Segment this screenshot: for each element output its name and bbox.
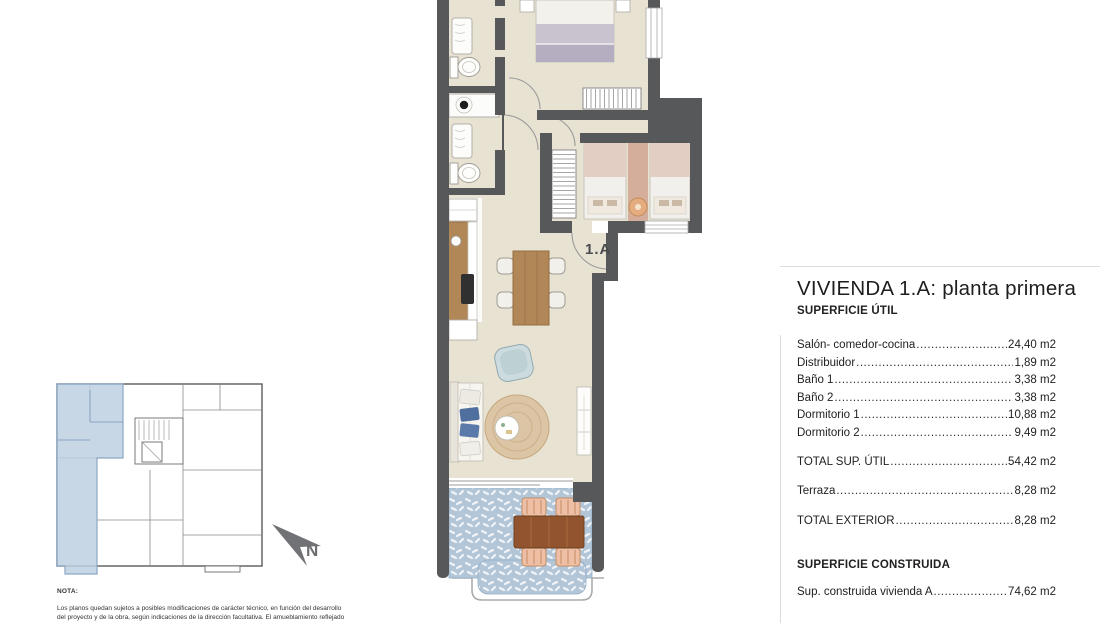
surface-row-construida: Sup. construida vivienda A .............…: [797, 584, 1056, 602]
sofa: [450, 382, 483, 462]
surface-row-value: 1,89 m2: [1014, 355, 1056, 373]
nightstand: [520, 0, 534, 12]
surface-row-label: Salón- comedor-cocina: [797, 337, 915, 355]
dotted-leader: ........................................…: [934, 584, 1008, 602]
surface-row-total-exterior: TOTAL EXTERIOR .........................…: [797, 513, 1056, 531]
surface-row-value: 8,28 m2: [1014, 483, 1056, 501]
surface-row: Dormitorio 1............................…: [797, 407, 1056, 425]
surface-row-value: 3,38 m2: [1014, 390, 1056, 408]
surface-row-label: Sup. construida vivienda A: [797, 584, 933, 602]
bedroom-2: [552, 143, 690, 221]
surface-row-label: Dormitorio 2: [797, 425, 860, 443]
surface-row-value: 9,49 m2: [1014, 425, 1056, 443]
surface-rows-util: Salón- comedor-cocina...................…: [797, 337, 1056, 443]
toilet-2: [450, 163, 480, 184]
window-bedroom2: [645, 221, 688, 233]
washbasin-counter: [449, 94, 499, 117]
single-bed-2: [650, 143, 690, 219]
surface-row-label: Terraza: [797, 483, 835, 501]
dining-table: [513, 251, 549, 325]
dotted-leader: ........................................…: [916, 337, 1007, 355]
panel-title: VIVIENDA 1.A: planta primera: [797, 277, 1056, 301]
note-line-1: Los planos quedan sujetos a posibles mod…: [57, 604, 387, 613]
dotted-leader: ........................................…: [836, 483, 1013, 501]
surface-row-label: Baño 1: [797, 372, 833, 390]
note-heading: NOTA:: [57, 588, 387, 595]
stair-core: [135, 418, 183, 464]
section-superficie-util: SUPERFICIE ÚTIL: [797, 305, 1056, 317]
surface-row-label: TOTAL SUP. ÚTIL: [797, 454, 889, 472]
surface-row-value: 8,28 m2: [1014, 513, 1056, 531]
north-label: N: [306, 541, 318, 561]
side-table: [495, 416, 519, 440]
surface-row-terraza: Terraza ................................…: [797, 483, 1056, 501]
surface-row-value: 3,38 m2: [1014, 372, 1056, 390]
terrace-table: [514, 516, 584, 548]
window-bedroom1: [646, 8, 662, 58]
dotted-leader: ........................................…: [896, 513, 1014, 531]
section-superficie-construida: SUPERFICIE CONSTRUIDA: [797, 559, 1056, 571]
surface-row-total-util: TOTAL SUP. ÚTIL ........................…: [797, 454, 1056, 472]
dotted-leader: ........................................…: [861, 425, 1014, 443]
shower-1: [452, 18, 472, 54]
washbasin-faucet: [460, 101, 468, 109]
kitchen-sink: [451, 236, 461, 246]
surface-row: Salón- comedor-cocina...................…: [797, 337, 1056, 355]
surface-panel: VIVIENDA 1.A: planta primera SUPERFICIE …: [797, 277, 1056, 602]
dotted-leader: ........................................…: [834, 390, 1013, 408]
surface-row-label: Baño 2: [797, 390, 833, 408]
floor-plan-page: 1.A N VIVIENDA 1.A: planta primera SUPER…: [0, 0, 1110, 623]
kitchen: [448, 198, 482, 340]
nightstand: [616, 0, 630, 12]
surface-row-label: TOTAL EXTERIOR: [797, 513, 895, 531]
table-gridline-horizontal: [780, 266, 1100, 267]
surface-row-label: Dormitorio 1: [797, 407, 860, 425]
key-plan: [57, 384, 262, 574]
surface-row: Distribuidor............................…: [797, 355, 1056, 373]
dotted-leader: ........................................…: [890, 454, 1007, 472]
single-bed-1: [584, 143, 626, 219]
surface-row-value: 54,42 m2: [1008, 454, 1056, 472]
dotted-leader: ........................................…: [834, 372, 1013, 390]
surface-row: Dormitorio 2............................…: [797, 425, 1056, 443]
surface-row: Baño 1..................................…: [797, 372, 1056, 390]
table-gridline-vertical: [780, 335, 781, 623]
surface-row-value: 74,62 m2: [1008, 584, 1056, 602]
note-line-2: del proyecto y de la obra, según indicac…: [57, 613, 387, 622]
toilet-1: [450, 57, 480, 78]
surface-row: Baño 2..................................…: [797, 390, 1056, 408]
surface-row-value: 10,88 m2: [1008, 407, 1056, 425]
shower-2: [452, 124, 472, 158]
console-sideboard: [577, 387, 591, 455]
dotted-leader: ........................................…: [861, 407, 1007, 425]
surface-row-label: Distribuidor: [797, 355, 855, 373]
surface-row-value: 24,40 m2: [1008, 337, 1056, 355]
terrace: [449, 488, 604, 600]
sliding-door-terrace: [449, 478, 573, 488]
note-block: NOTA: Los planos quedan sujetos a posibl…: [57, 588, 387, 622]
double-bed: [536, 0, 614, 62]
unit-label: 1.A: [585, 241, 611, 258]
cooktop: [461, 274, 474, 304]
dotted-leader: ........................................…: [856, 355, 1013, 373]
